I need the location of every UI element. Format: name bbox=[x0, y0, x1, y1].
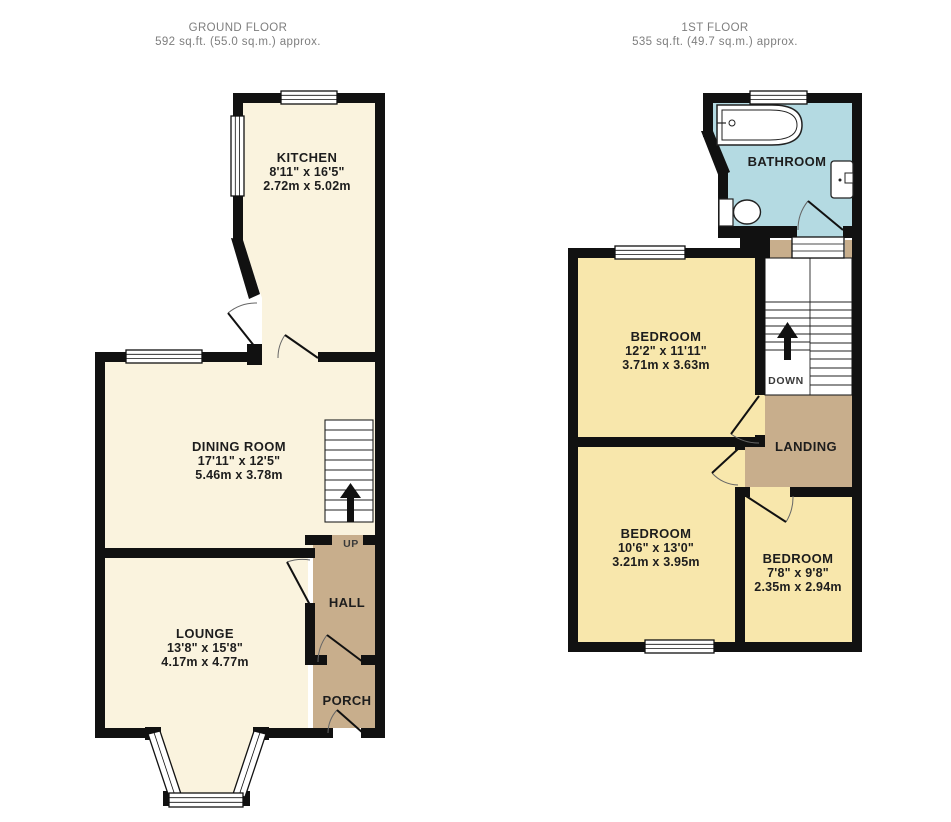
bedroom-1-size-imperial: 12'2" x 11'11" bbox=[625, 344, 707, 358]
kitchen-back-door bbox=[228, 303, 257, 347]
lounge-size-imperial: 13'8" x 15'8" bbox=[167, 641, 243, 655]
bedroom-2-doorway bbox=[735, 450, 745, 487]
hall-label: HALL bbox=[329, 595, 365, 610]
ground-floor-area: 592 sq.ft. (55.0 sq.m.) approx. bbox=[155, 36, 321, 48]
toilet bbox=[719, 199, 761, 226]
bedroom-1-label: BEDROOM bbox=[631, 329, 702, 344]
ground-floor-plan: KITCHEN 8'11" x 16'5" 2.72m x 5.02m DINI… bbox=[95, 91, 385, 807]
kitchen-label: KITCHEN bbox=[277, 150, 338, 165]
bedroom-3-size-imperial: 7'8" x 9'8" bbox=[767, 566, 829, 580]
kitchen-size-metric: 2.72m x 5.02m bbox=[263, 179, 350, 193]
floorplan-drawing: GROUND FLOOR 592 sq.ft. (55.0 sq.m.) app… bbox=[0, 0, 951, 822]
first-floor-plan: BATHROOM BEDROOM 12'2" x 11'11" 3.71m x … bbox=[568, 91, 862, 653]
bedroom-3-doorway bbox=[750, 487, 790, 497]
floorplan-page: GROUND FLOOR 592 sq.ft. (55.0 sq.m.) app… bbox=[0, 0, 951, 822]
half-landing-strip-left bbox=[770, 240, 793, 258]
dining-room-size-imperial: 17'11" x 12'5" bbox=[198, 454, 280, 468]
kitchen-top-window bbox=[281, 91, 337, 104]
staircase-ground bbox=[325, 420, 373, 522]
bedroom-3-size-metric: 2.35m x 2.94m bbox=[754, 580, 841, 594]
kitchen-dining-doorway bbox=[262, 352, 318, 362]
landing-label: LANDING bbox=[775, 439, 837, 454]
half-landing-window bbox=[792, 237, 844, 258]
dining-room-window bbox=[126, 350, 202, 363]
up-label: UP bbox=[343, 538, 359, 550]
bedroom-3-label: BEDROOM bbox=[763, 551, 834, 566]
first-floor-title: 1ST FLOOR bbox=[681, 22, 748, 34]
bedroom-1-window bbox=[615, 246, 685, 259]
kitchen-side-window bbox=[231, 116, 244, 196]
bathtub bbox=[717, 105, 802, 145]
kitchen-size-imperial: 8'11" x 16'5" bbox=[269, 165, 344, 179]
dining-room-label: DINING ROOM bbox=[192, 439, 286, 454]
lounge-size-metric: 4.17m x 4.77m bbox=[161, 655, 248, 669]
down-label: DOWN bbox=[768, 375, 804, 387]
first-floor-area: 535 sq.ft. (49.7 sq.m.) approx. bbox=[632, 36, 798, 48]
up-arrow-icon bbox=[347, 496, 354, 522]
half-landing-strip-right bbox=[845, 240, 852, 258]
bedroom-2-window bbox=[645, 640, 714, 653]
sink bbox=[831, 161, 853, 198]
bedroom-2-size-metric: 3.21m x 3.95m bbox=[612, 555, 699, 569]
bathroom-label: BATHROOM bbox=[748, 154, 827, 169]
kitchen-floor bbox=[243, 103, 375, 352]
bedroom-2-size-imperial: 10'6" x 13'0" bbox=[618, 541, 694, 555]
bathroom-window bbox=[750, 91, 807, 104]
lounge-label: LOUNGE bbox=[176, 626, 234, 641]
bedroom-2-label: BEDROOM bbox=[621, 526, 692, 541]
porch-label: PORCH bbox=[323, 693, 372, 708]
bedroom-1-size-metric: 3.71m x 3.63m bbox=[622, 358, 709, 372]
dining-room-size-metric: 5.46m x 3.78m bbox=[195, 468, 282, 482]
down-arrow-icon bbox=[784, 336, 791, 360]
ground-floor-title: GROUND FLOOR bbox=[189, 22, 288, 34]
